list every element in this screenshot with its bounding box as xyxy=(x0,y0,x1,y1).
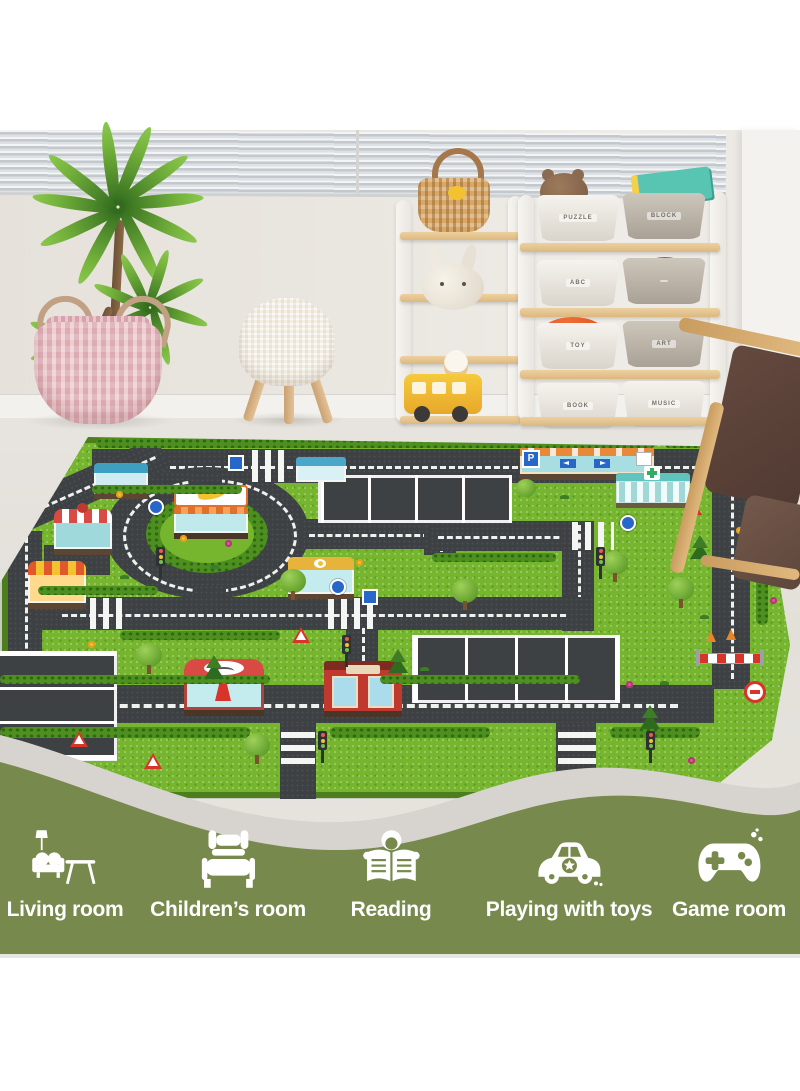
corner-shelf xyxy=(396,160,526,426)
banner-item-label: Reading xyxy=(351,898,432,922)
shelf-board xyxy=(520,243,720,252)
tree-trunk xyxy=(291,591,295,600)
traffic-cone xyxy=(706,631,716,642)
grass-tuft xyxy=(700,615,709,619)
road-dash-line xyxy=(309,534,430,537)
building-fruit-shop xyxy=(54,509,112,553)
tree xyxy=(516,479,536,497)
roundabout-sign xyxy=(620,515,636,531)
hospital-cross-tab xyxy=(644,466,660,480)
red-dress xyxy=(215,681,231,701)
pine-tree xyxy=(206,655,222,668)
bunny-eye xyxy=(440,282,444,286)
bush-row xyxy=(38,586,158,595)
tree xyxy=(280,569,306,593)
grass-tuft xyxy=(560,495,569,499)
bus-wheel xyxy=(452,406,468,422)
tree xyxy=(136,643,162,667)
pedestrian-sign xyxy=(228,455,244,471)
toy-bin: PUZZLE xyxy=(536,195,620,241)
person-reading-icon xyxy=(356,828,427,890)
kiosk-awning xyxy=(174,507,248,514)
traffic-light xyxy=(596,547,605,566)
bush-row xyxy=(380,675,580,684)
building-fast-food xyxy=(28,561,86,607)
fruit-toy xyxy=(448,186,466,200)
shop-base xyxy=(184,710,264,716)
building-clothes-shop xyxy=(184,659,264,717)
bin-label: ABC xyxy=(566,279,590,287)
road-segment xyxy=(302,519,436,549)
road-dash-line xyxy=(62,614,566,617)
parking-lot xyxy=(318,475,512,523)
no-entry-sign xyxy=(744,681,766,703)
grass-tuft xyxy=(420,667,429,671)
bush-row xyxy=(432,553,556,562)
bin-label: TOY xyxy=(566,342,589,350)
flower xyxy=(225,540,232,547)
shop-sign-band xyxy=(296,457,346,466)
crosswalk xyxy=(572,522,614,550)
warning-sign xyxy=(292,627,310,643)
flower xyxy=(180,535,187,542)
flower xyxy=(88,641,95,648)
traffic-light xyxy=(156,547,165,566)
arrow-sign xyxy=(594,459,610,468)
pine-tree xyxy=(390,649,406,662)
crosswalk xyxy=(252,450,286,482)
toy-bin: BLOCK xyxy=(622,193,706,239)
traffic-light-pole xyxy=(599,566,602,579)
banner-item-living-room: Living room xyxy=(0,828,130,922)
banner-item-game-room: Game room xyxy=(658,828,800,922)
arrow-sign xyxy=(560,459,576,468)
bush-row xyxy=(92,485,242,494)
banner-item-childrens-room: Children’s room xyxy=(138,828,318,922)
armchair xyxy=(660,310,800,610)
shop-window xyxy=(54,523,112,549)
banner-item-label: Playing with toys xyxy=(486,898,652,922)
shop-sign-band xyxy=(94,463,148,473)
product-photo: PUZZLE BLOCK ABC TOY ART BOOK MUSIC xyxy=(0,0,800,1091)
sofa-lamp-table-icon xyxy=(30,828,101,890)
pedestrian-sign xyxy=(362,589,378,605)
barrier-post xyxy=(760,649,764,666)
shelf-board xyxy=(400,232,520,240)
bush-row xyxy=(120,631,280,640)
bin-label: BOOK xyxy=(563,402,593,410)
shop-awning xyxy=(28,561,86,575)
tree-trunk xyxy=(147,665,151,674)
flower xyxy=(626,681,633,688)
shop-base xyxy=(54,549,112,555)
grass-tuft xyxy=(660,681,669,685)
bin-label xyxy=(660,280,668,282)
bunny-plush-head xyxy=(422,264,484,310)
bus-wheel xyxy=(414,406,430,422)
bunny-eye xyxy=(462,282,466,286)
banner-item-label: Children’s room xyxy=(150,898,306,922)
cart-sign xyxy=(636,452,652,466)
shop-sign-band xyxy=(288,557,354,570)
tree-trunk xyxy=(463,601,467,610)
garage-window xyxy=(332,676,358,708)
banner-item-playing-with-toys: Playing with toys xyxy=(478,828,660,922)
banner-item-label: Game room xyxy=(672,898,786,922)
gamepad-icon xyxy=(694,828,765,890)
market-window xyxy=(520,456,654,474)
barrier-post xyxy=(696,649,700,666)
grass-tuft xyxy=(210,565,219,569)
tree-trunk xyxy=(613,573,617,582)
crosswalk xyxy=(90,598,128,629)
toy-car-star-icon xyxy=(534,828,605,890)
shop-base xyxy=(288,594,354,599)
window-frame xyxy=(356,130,359,194)
pink-basket-planter xyxy=(34,322,162,424)
tree xyxy=(452,579,478,603)
bus-window xyxy=(452,382,466,394)
pine-tree xyxy=(642,705,658,718)
parking-lot xyxy=(412,635,620,703)
bed-icon xyxy=(193,828,264,890)
egg-yolk xyxy=(318,561,323,566)
flower xyxy=(356,559,363,566)
knit-stool xyxy=(239,298,335,386)
grass-tuft xyxy=(120,575,129,579)
roundabout-sign xyxy=(330,579,346,595)
flower xyxy=(116,491,123,498)
bus-window xyxy=(412,382,426,394)
traffic-light-pole xyxy=(159,566,162,579)
toy-bin: TOY xyxy=(536,323,620,369)
roundabout-sign xyxy=(148,499,164,515)
tree xyxy=(602,551,628,575)
garage-sign xyxy=(346,665,380,674)
bin-label: PUZZLE xyxy=(559,214,596,222)
apple-sign xyxy=(77,503,88,513)
toy-bin xyxy=(622,258,706,304)
bush-row xyxy=(0,675,270,684)
shop-base xyxy=(28,603,86,609)
kiosk-window xyxy=(174,514,248,533)
banner-item-reading: Reading xyxy=(328,828,454,922)
bin-label: BLOCK xyxy=(647,212,681,220)
parking-sign: P xyxy=(522,450,540,468)
shop-window xyxy=(296,466,346,482)
toy-bin: ABC xyxy=(536,260,620,306)
garage-base xyxy=(324,711,402,717)
building-tool-shop xyxy=(296,457,346,483)
road-barrier xyxy=(698,653,764,664)
traffic-light xyxy=(342,635,351,654)
traffic-light-pole xyxy=(345,654,348,667)
traffic-cone xyxy=(726,629,736,640)
bus-window xyxy=(432,382,446,394)
banner-item-label: Living room xyxy=(7,898,124,922)
